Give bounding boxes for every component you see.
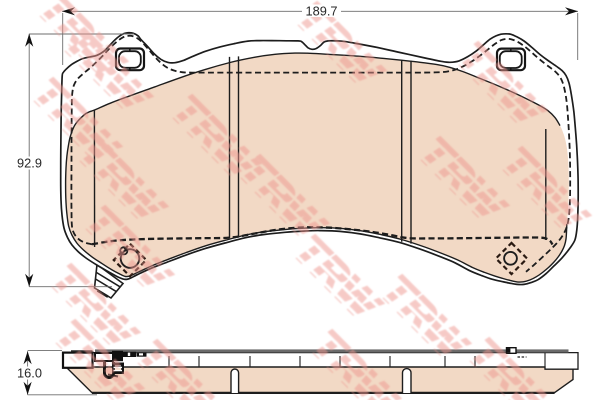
svg-text:92.9: 92.9 xyxy=(17,155,42,170)
svg-text:189.7: 189.7 xyxy=(305,3,337,18)
svg-text:16.0: 16.0 xyxy=(17,365,42,380)
